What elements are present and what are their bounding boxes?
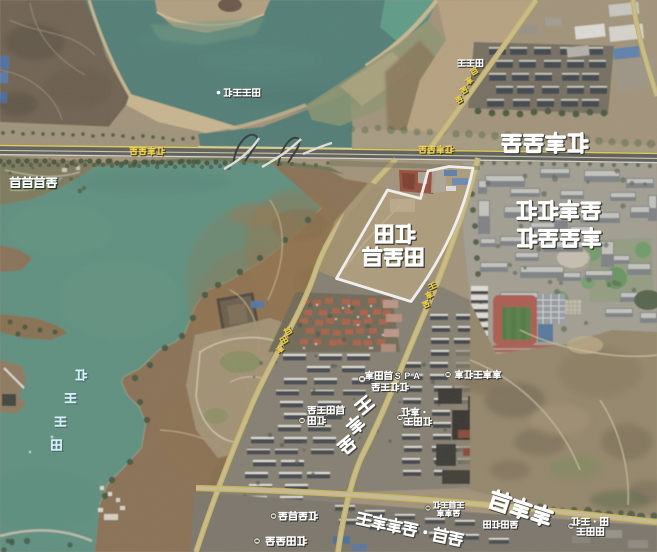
svg-text:A: A	[413, 371, 420, 381]
svg-text:P: P	[404, 371, 410, 381]
svg-text:S: S	[395, 371, 401, 381]
